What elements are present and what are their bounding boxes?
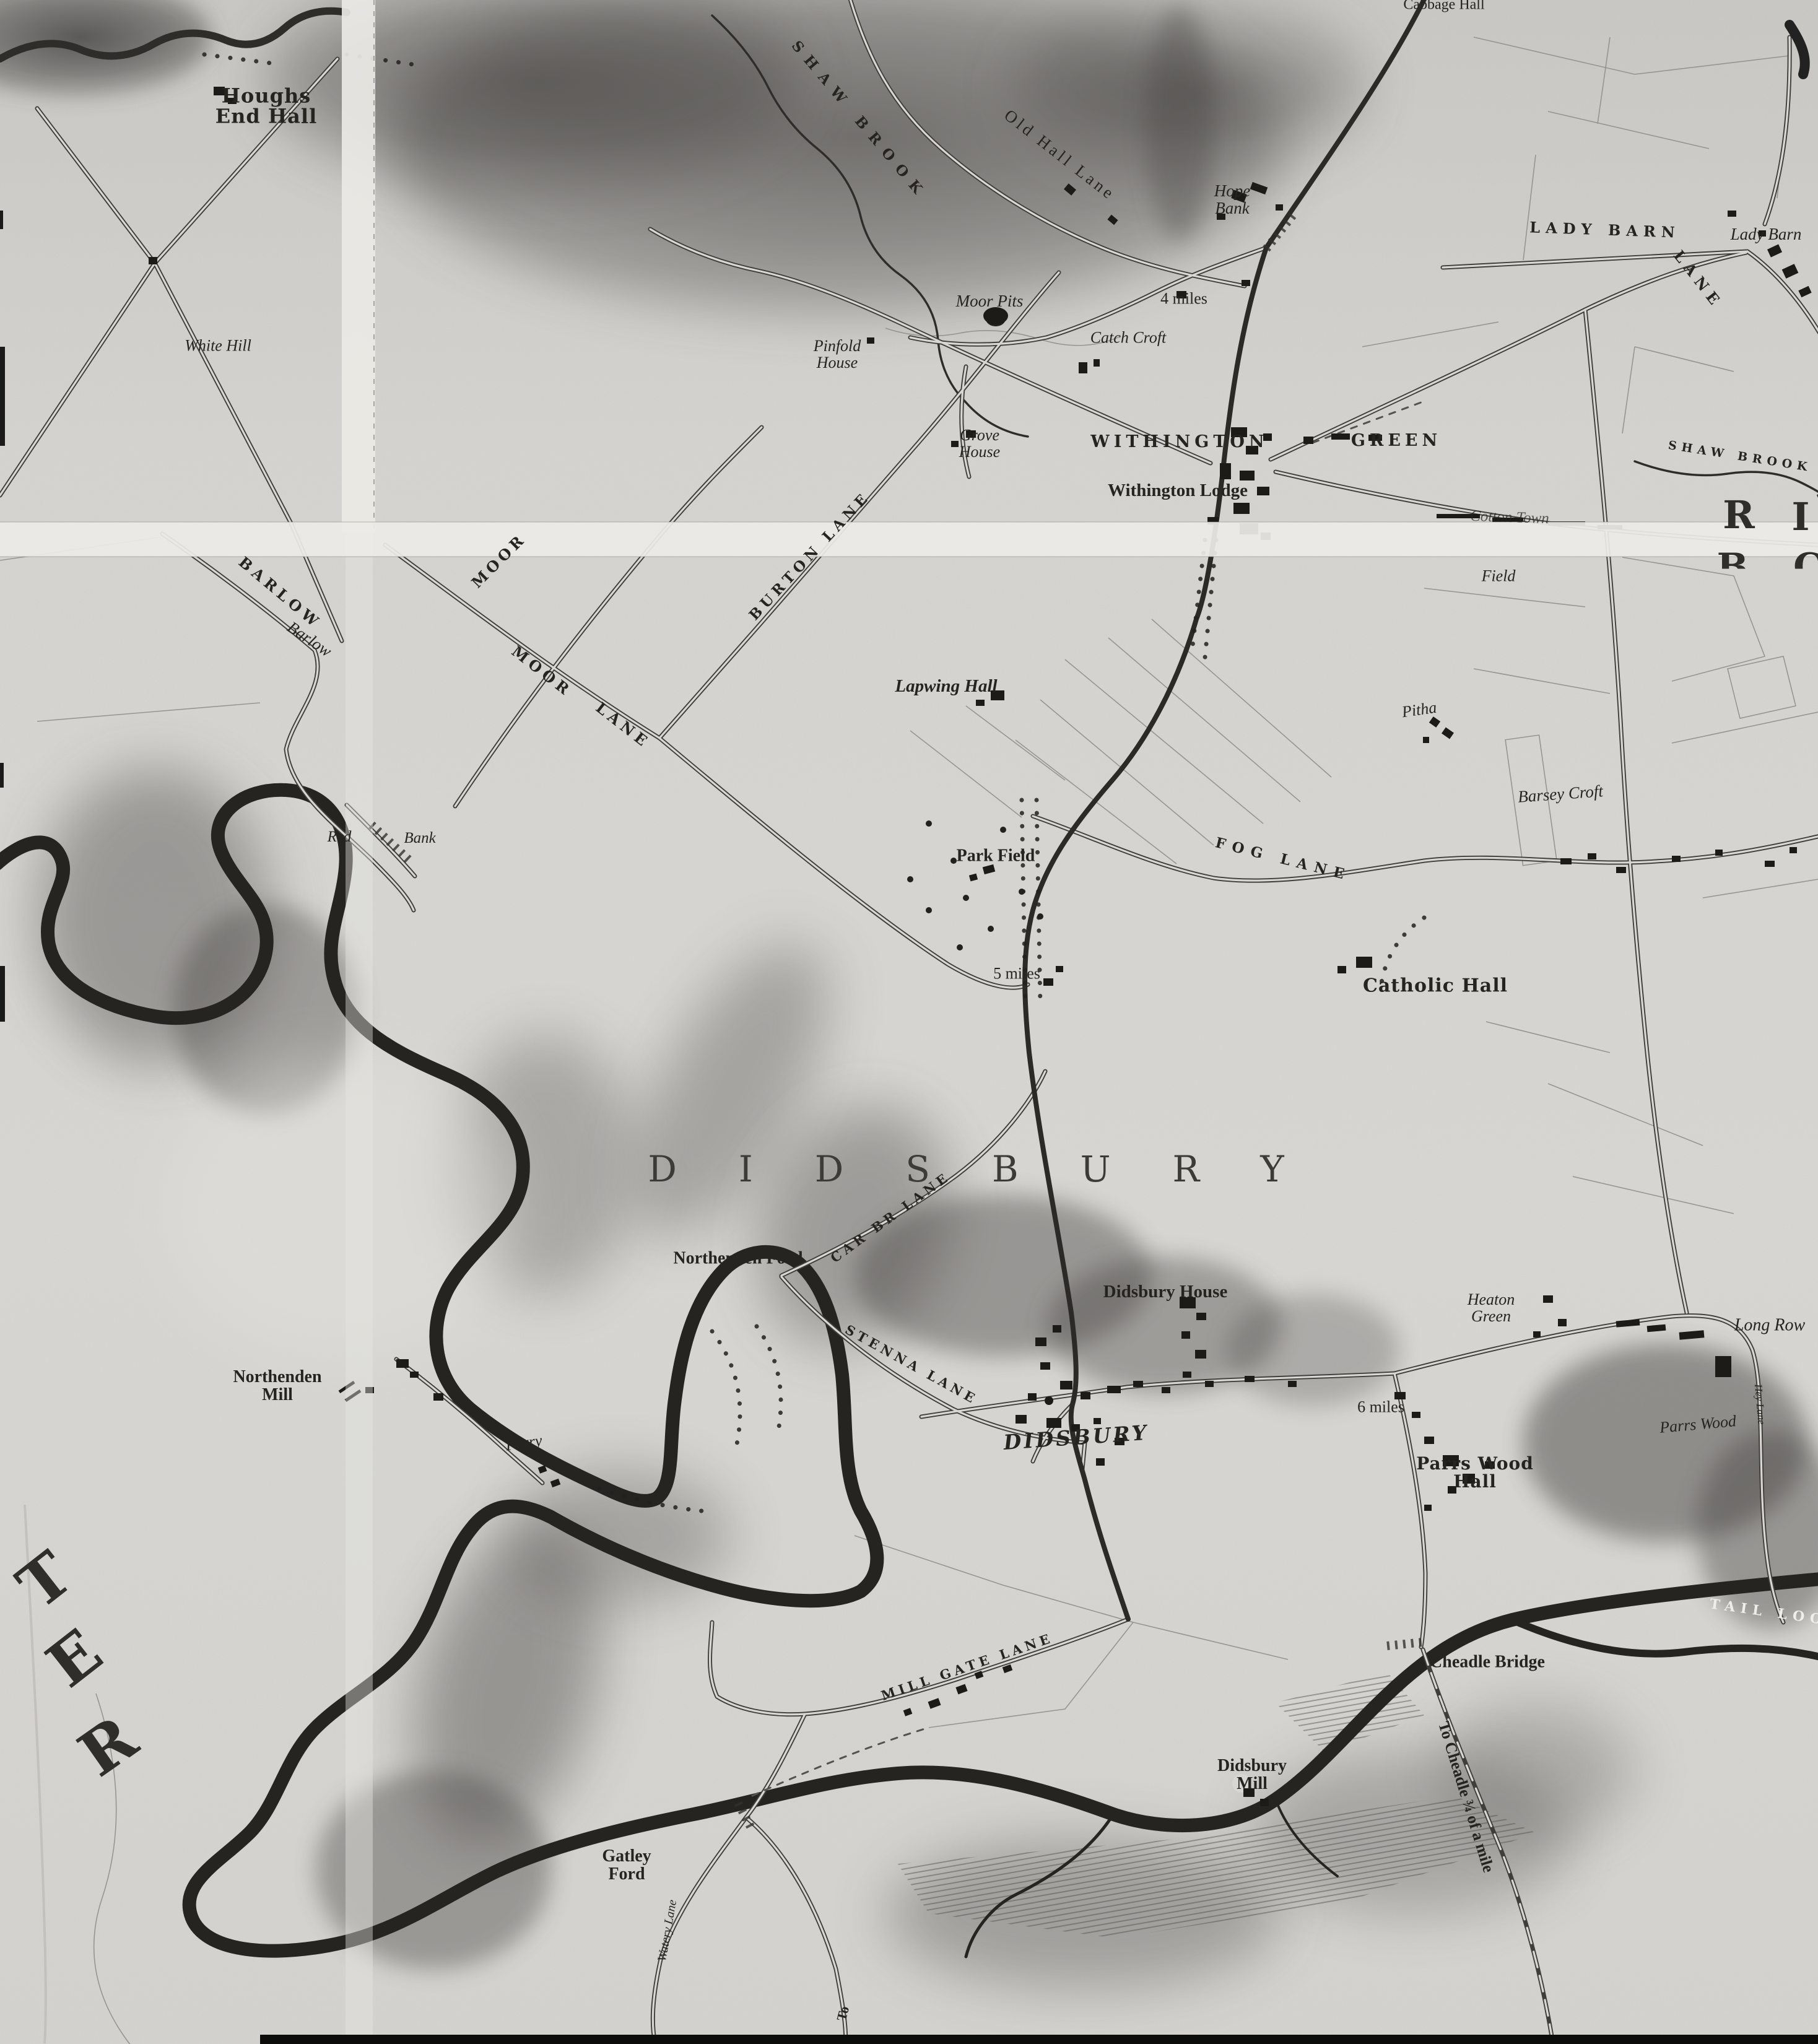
label-catch-croft: Catch Croft xyxy=(1090,329,1167,346)
label-withington-lodge: Withington Lodge xyxy=(1108,481,1248,500)
label-didsbury-mill: Didsbury Mill xyxy=(1217,1757,1287,1793)
label-lady-barn: Lady Barn xyxy=(1731,225,1802,243)
label-moor-pits: Moor Pits xyxy=(956,292,1024,310)
label-cotton-town: Cotton Town xyxy=(1470,508,1549,527)
label-cheadle-bridge: Cheadle Bridge xyxy=(1430,1653,1545,1671)
label-hope-bank: Hope Bank xyxy=(1214,182,1250,217)
label-6-miles: 6 miles xyxy=(1357,1398,1404,1415)
label-didsbury-house: Didsbury House xyxy=(1103,1282,1228,1301)
label-catholic-hall: Catholic Hall xyxy=(1363,976,1508,995)
label-didsbury-township: DIDSBURY xyxy=(648,1150,1346,1188)
label-park-field: Park Field xyxy=(957,846,1035,864)
didsbury-church-symbol xyxy=(1045,1396,1053,1405)
label-sheet-letter-r: R xyxy=(1723,495,1755,535)
label-cabbage-hall: Cabbage Hall xyxy=(1403,0,1484,12)
label-bank-fragment: Bank xyxy=(404,830,435,846)
label-5-miles: 5 miles xyxy=(993,965,1040,981)
label-grove-house: Grove House xyxy=(959,427,1000,460)
label-northenden-ford: Northenden Ford xyxy=(673,1249,802,1267)
label-houghs-end-hall: Houghs End Hall xyxy=(215,86,317,128)
label-4-miles: 4 miles xyxy=(1160,290,1207,307)
label-long-row: Long Row xyxy=(1734,1316,1805,1334)
historical-map-sheet: Houghs End Hall White Hill SHAW BROOK Ol… xyxy=(0,0,1818,2044)
label-northenden-mill: Northenden Mill xyxy=(233,1368,321,1404)
label-sheet-letter-i: I xyxy=(1791,497,1809,537)
label-withington-green: GREEN xyxy=(1351,432,1442,450)
label-gatley-ford: Gatley Ford xyxy=(602,1847,651,1883)
label-lapwing-hall: Lapwing Hall xyxy=(895,677,997,695)
label-white-hill: White Hill xyxy=(185,337,251,354)
label-parrs-wood-hall: Parrs Wood Hall xyxy=(1416,1455,1534,1490)
label-field: Field xyxy=(1482,567,1516,584)
label-heaton-green: Heaton Green xyxy=(1468,1291,1515,1324)
label-red-fragment: Red xyxy=(328,829,352,845)
map-artwork xyxy=(0,0,1818,2044)
label-withington: WITHINGTON xyxy=(1090,433,1268,451)
label-pinfold-house: Pinfold House xyxy=(814,337,861,371)
